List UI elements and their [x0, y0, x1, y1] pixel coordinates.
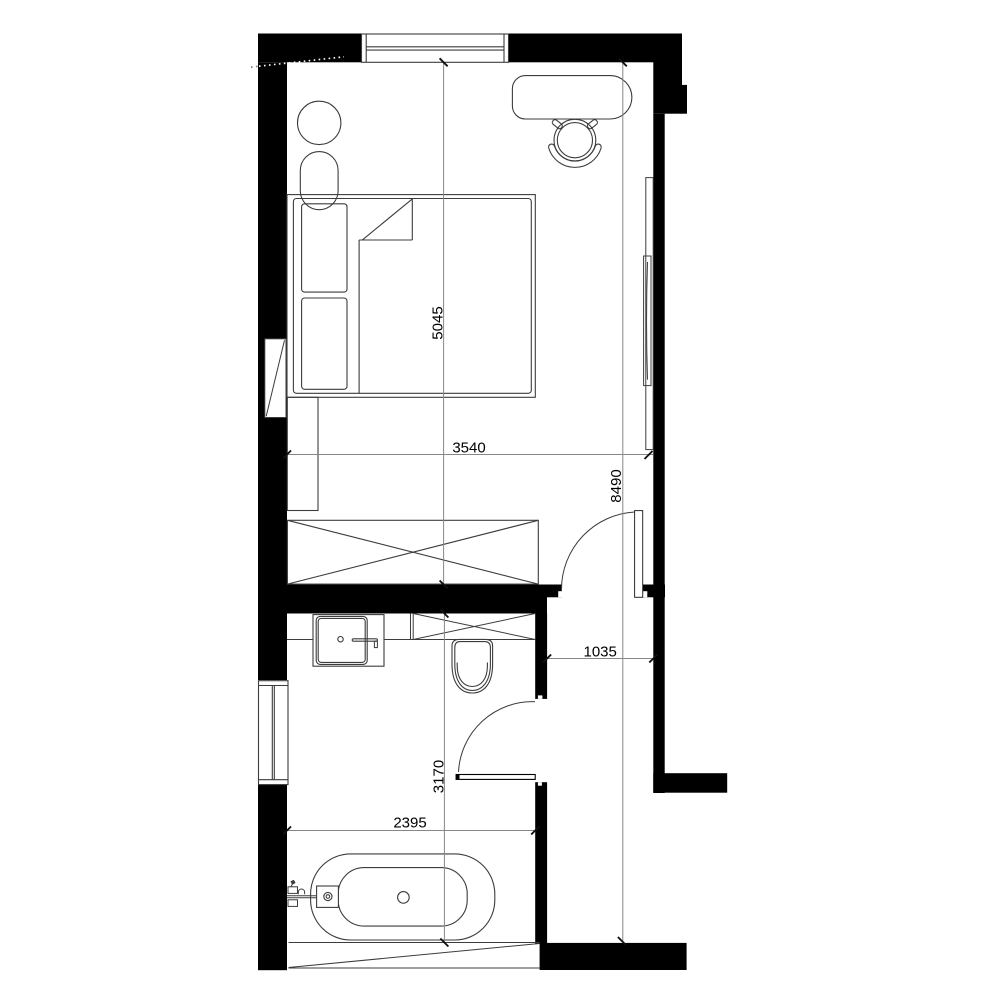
svg-text:3540: 3540 — [452, 440, 485, 457]
svg-text:2395: 2395 — [393, 815, 426, 832]
svg-text:8490: 8490 — [608, 469, 625, 502]
svg-text:1035: 1035 — [584, 644, 617, 661]
svg-text:3170: 3170 — [430, 760, 447, 793]
svg-text:5045: 5045 — [430, 306, 447, 339]
